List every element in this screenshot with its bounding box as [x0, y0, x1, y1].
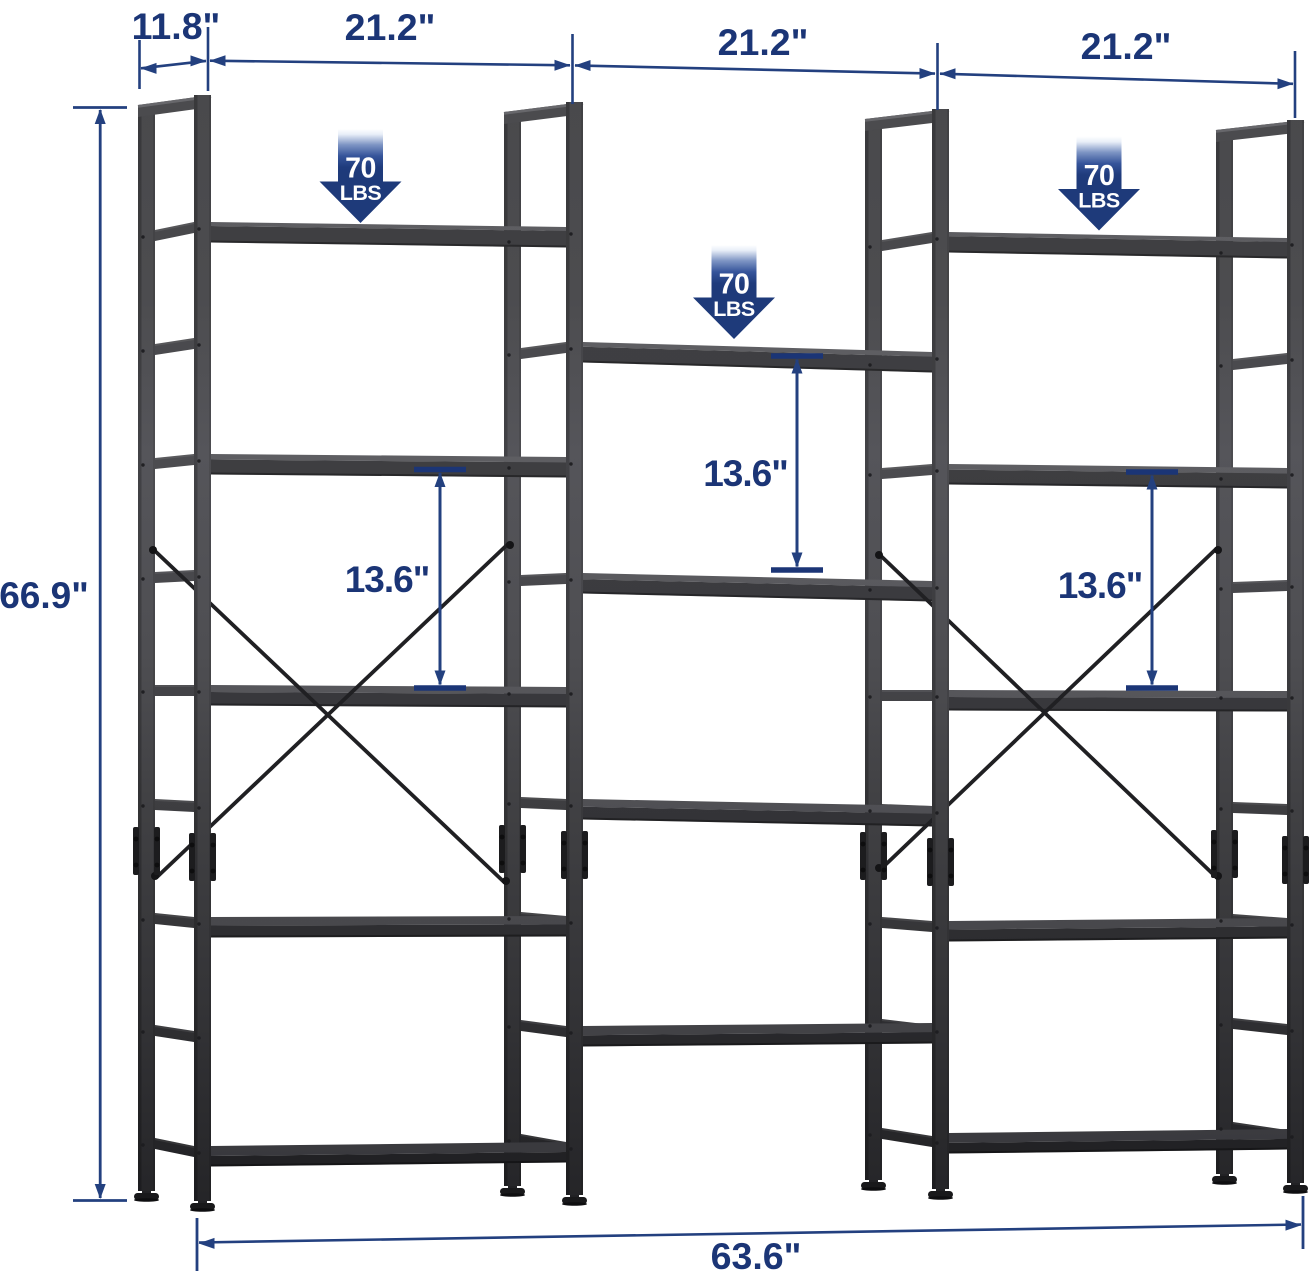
svg-text:66.9": 66.9": [0, 575, 89, 616]
svg-text:70: 70: [1084, 160, 1115, 192]
svg-text:LBS: LBS: [1078, 189, 1120, 213]
svg-text:70: 70: [719, 269, 750, 301]
svg-text:70: 70: [345, 153, 376, 185]
svg-text:21.2": 21.2": [1081, 25, 1172, 67]
svg-text:11.8": 11.8": [132, 5, 221, 47]
svg-text:21.2": 21.2": [718, 21, 809, 63]
svg-text:LBS: LBS: [713, 297, 755, 321]
svg-text:21.2": 21.2": [345, 6, 436, 48]
svg-text:63.6": 63.6": [711, 1235, 802, 1274]
svg-text:LBS: LBS: [340, 181, 382, 205]
svg-text:13.6": 13.6": [703, 453, 788, 494]
svg-text:13.6": 13.6": [345, 559, 430, 600]
svg-text:13.6": 13.6": [1058, 565, 1143, 606]
